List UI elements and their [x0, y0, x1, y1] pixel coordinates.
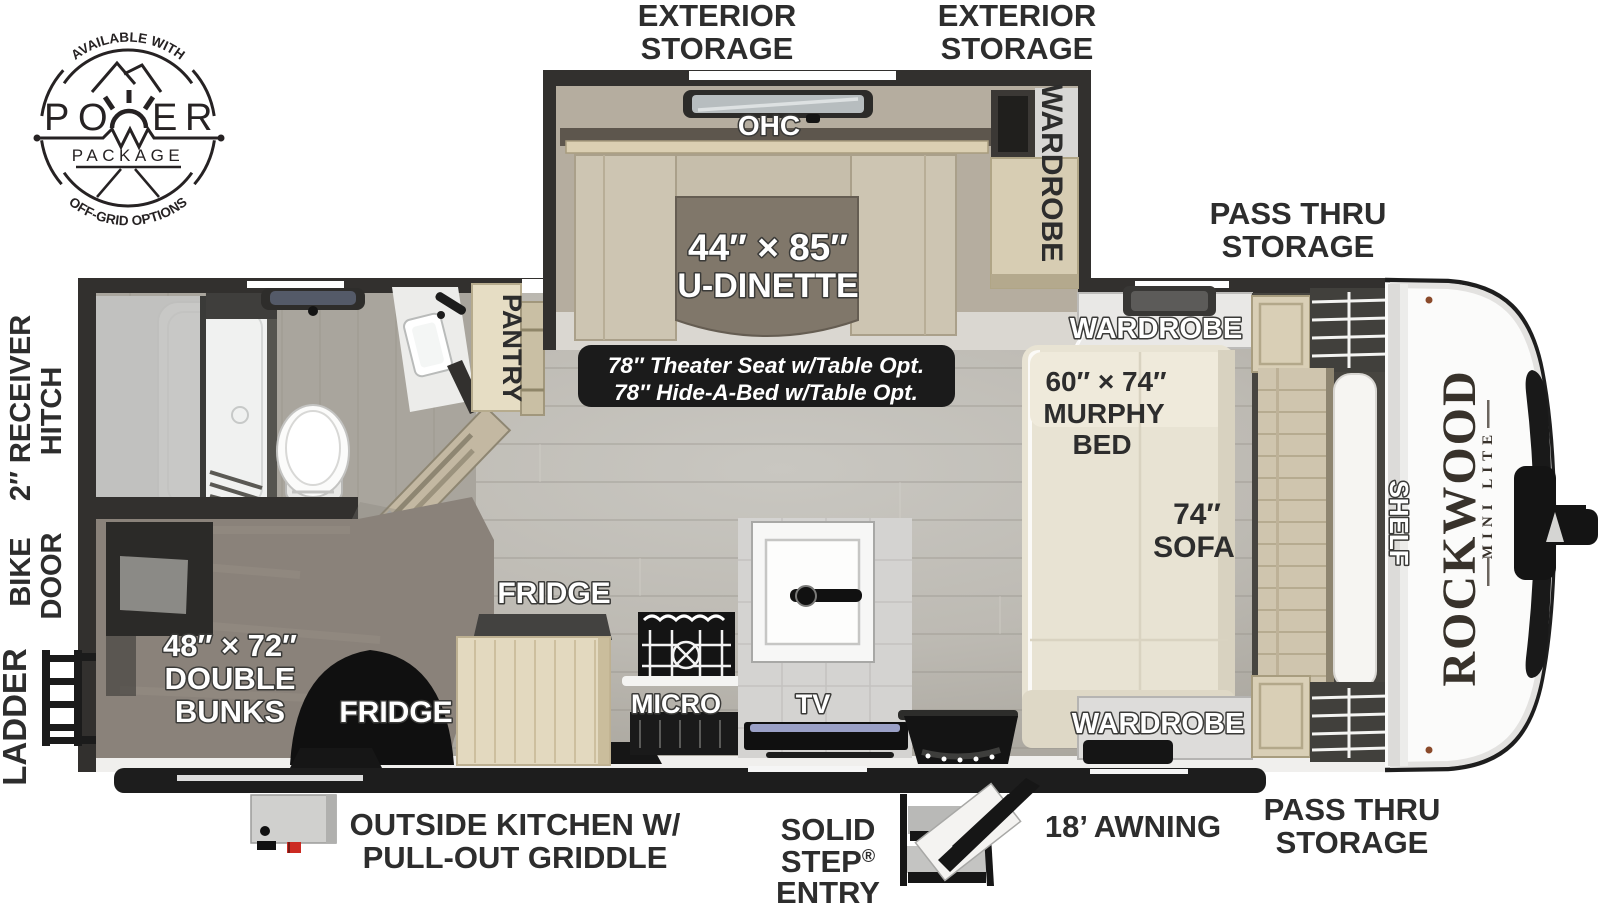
svg-text:EXTERIOR: EXTERIOR	[938, 0, 1096, 33]
svg-text:EXTERIOR: EXTERIOR	[638, 0, 796, 33]
svg-text:60″ × 74″: 60″ × 74″	[1045, 366, 1166, 397]
svg-text:MICRO: MICRO	[631, 689, 721, 719]
svg-text:WARDROBE: WARDROBE	[1072, 708, 1244, 740]
svg-text:TV: TV	[796, 689, 831, 719]
svg-text:BUNKS: BUNKS	[175, 694, 285, 729]
svg-text:OUTSIDE KITCHEN W/: OUTSIDE KITCHEN W/	[350, 807, 681, 842]
svg-text:STEP®: STEP®	[781, 844, 875, 879]
svg-text:DOOR: DOOR	[36, 532, 68, 619]
svg-text:MINI LITE: MINI LITE	[1480, 429, 1496, 559]
svg-text:PULL-OUT GRIDDLE: PULL-OUT GRIDDLE	[363, 840, 668, 875]
svg-text:STORAGE: STORAGE	[1276, 825, 1429, 860]
svg-text:MURPHY: MURPHY	[1043, 398, 1165, 429]
svg-text:18’ AWNING: 18’ AWNING	[1045, 809, 1221, 844]
svg-text:2″ RECEIVER: 2″ RECEIVER	[5, 315, 37, 501]
svg-text:78″ Theater Seat w/Table Opt.: 78″ Theater Seat w/Table Opt.	[608, 353, 924, 378]
svg-text:BED: BED	[1072, 429, 1131, 460]
svg-text:SOFA: SOFA	[1153, 531, 1235, 564]
svg-text:STORAGE: STORAGE	[641, 31, 794, 66]
svg-text:P: P	[44, 97, 69, 139]
svg-text:PACKAGE: PACKAGE	[72, 146, 184, 165]
svg-text:SHELF: SHELF	[1384, 480, 1414, 565]
svg-text:ENTRY: ENTRY	[776, 875, 880, 904]
svg-text:PASS THRU: PASS THRU	[1210, 196, 1387, 231]
svg-text:E: E	[152, 97, 177, 139]
svg-text:SOLID: SOLID	[781, 812, 876, 847]
svg-text:78″ Hide-A-Bed w/Table Opt.: 78″ Hide-A-Bed w/Table Opt.	[614, 380, 918, 405]
svg-text:FRIDGE: FRIDGE	[339, 696, 452, 729]
svg-text:PASS THRU: PASS THRU	[1264, 792, 1441, 827]
svg-text:PANTRY: PANTRY	[497, 294, 527, 402]
svg-text:O: O	[78, 97, 108, 139]
svg-text:U-DINETTE: U-DINETTE	[677, 267, 858, 305]
svg-text:LADDER: LADDER	[0, 648, 33, 786]
svg-text:44″ × 85″: 44″ × 85″	[688, 227, 848, 268]
svg-text:BIKE: BIKE	[5, 537, 37, 606]
svg-text:STORAGE: STORAGE	[1222, 229, 1375, 264]
svg-text:ROCKWOOD: ROCKWOOD	[1433, 369, 1486, 686]
svg-text:WARDROBE: WARDROBE	[1070, 313, 1242, 345]
svg-text:74″: 74″	[1173, 498, 1221, 531]
svg-text:HITCH: HITCH	[36, 367, 68, 456]
svg-text:48″ × 72″: 48″ × 72″	[163, 628, 297, 663]
svg-text:R: R	[185, 97, 212, 139]
svg-text:FRIDGE: FRIDGE	[497, 577, 610, 610]
svg-text:WARDROBE: WARDROBE	[1035, 84, 1068, 262]
svg-text:OHC: OHC	[738, 110, 800, 141]
svg-text:STORAGE: STORAGE	[941, 31, 1094, 66]
svg-text:DOUBLE: DOUBLE	[165, 661, 296, 696]
